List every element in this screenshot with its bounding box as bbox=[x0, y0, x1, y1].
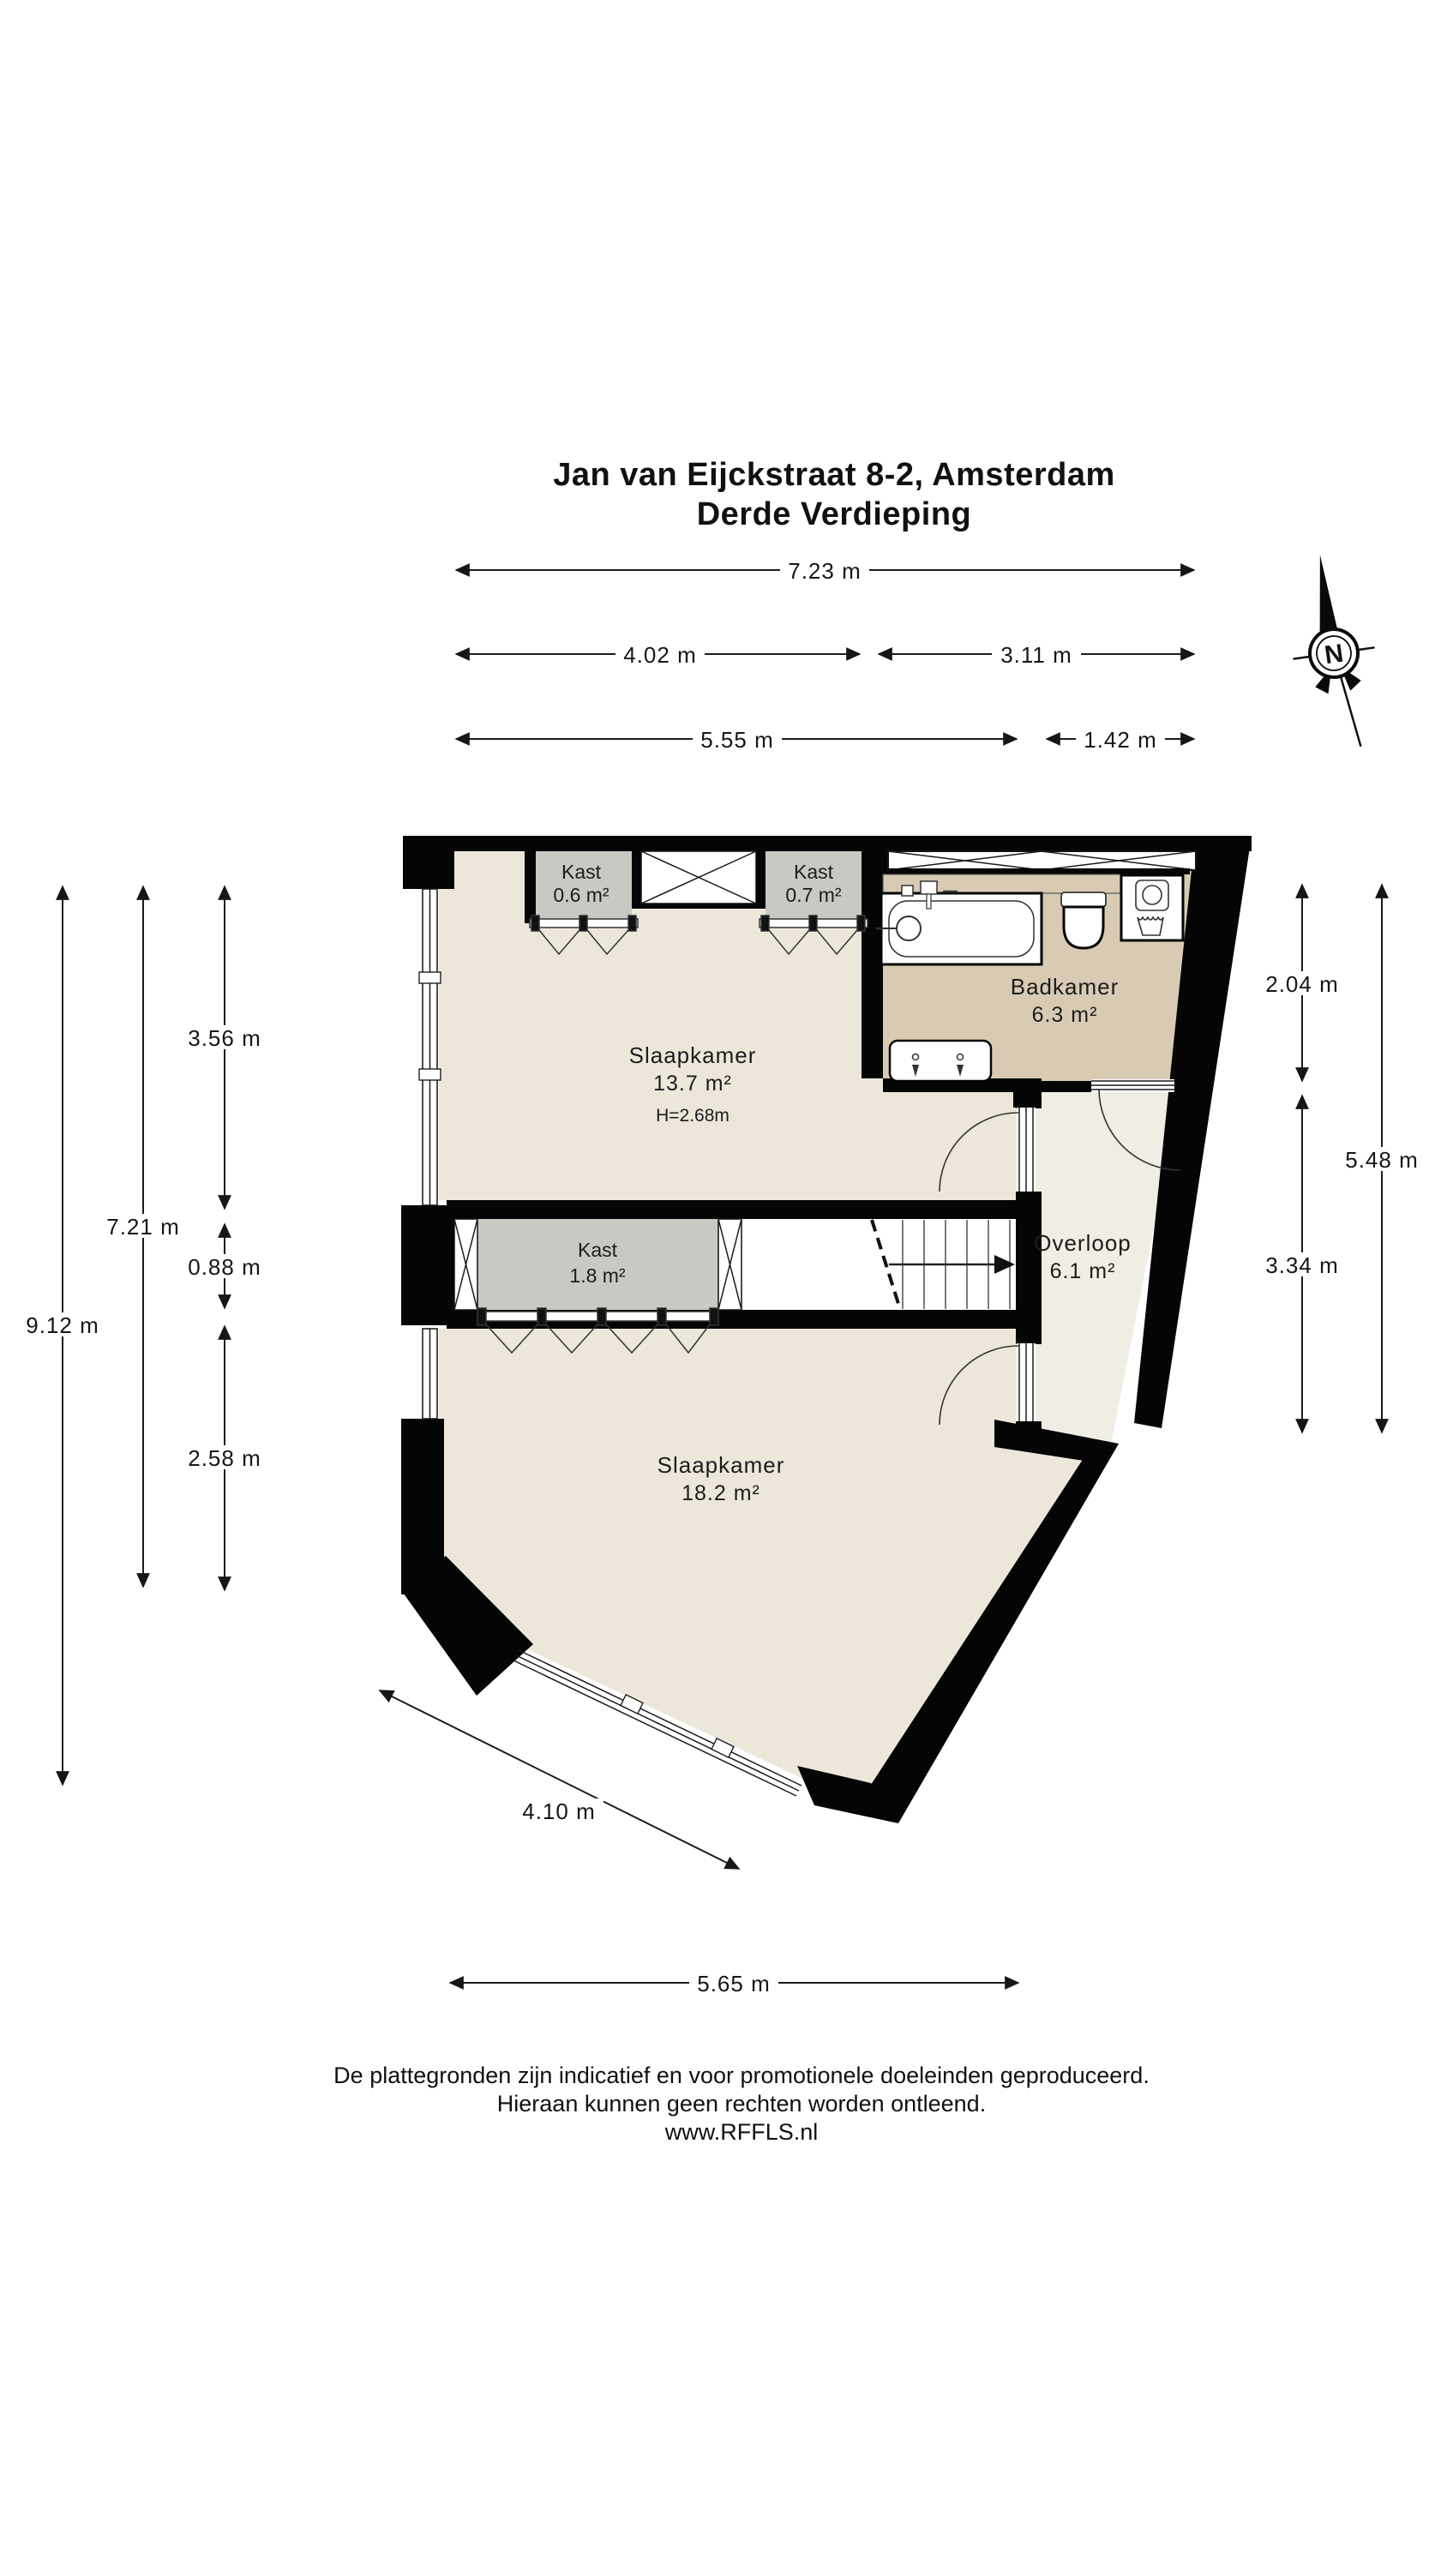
page-titles: Jan van Eijckstraat 8-2, Amsterdam Derde… bbox=[553, 457, 1115, 532]
dim-label-204: 2.04 m bbox=[1265, 971, 1339, 997]
kast3-area: 1.8 m² bbox=[569, 1264, 626, 1287]
kast3-left-post bbox=[454, 1219, 477, 1310]
washing-machine-icon bbox=[1121, 875, 1183, 940]
slaapkamer1-name: Slaapkamer bbox=[629, 1042, 757, 1068]
floorplan-drawing: 7.23 m 4.02 m 3.11 m 5.55 m 1.42 m 9.12 … bbox=[0, 0, 1447, 2572]
kast3-right-post bbox=[718, 1219, 742, 1310]
shaft-x-box bbox=[641, 851, 756, 904]
badkamer-area: 6.3 m² bbox=[1032, 1003, 1098, 1027]
floorplan-page: 7.23 m 4.02 m 3.11 m 5.55 m 1.42 m 9.12 … bbox=[0, 0, 1447, 2572]
window-badkamer-top bbox=[888, 851, 1196, 874]
wall-left-mid-block bbox=[401, 1205, 454, 1325]
footer-line-2: Hieraan kunnen geen rechten worden ontle… bbox=[497, 2091, 986, 2117]
dim-label-410: 4.10 m bbox=[522, 1798, 596, 1824]
wall-badkamer-bottom-mid bbox=[1042, 1081, 1091, 1092]
wall-top bbox=[403, 836, 1252, 851]
wall-top-left-corner bbox=[403, 836, 454, 889]
compass-north-icon: N bbox=[1279, 549, 1388, 754]
compass-north-label: N bbox=[1323, 639, 1345, 670]
dim-label-334: 3.34 m bbox=[1265, 1252, 1339, 1278]
dim-label-548: 5.48 m bbox=[1345, 1147, 1419, 1173]
dim-label-142: 1.42 m bbox=[1084, 727, 1157, 753]
badkamer-name: Badkamer bbox=[1011, 974, 1120, 1000]
kast3-name: Kast bbox=[578, 1239, 618, 1261]
wall-shaft-right bbox=[756, 851, 766, 907]
kast1-area: 0.6 m² bbox=[553, 884, 609, 906]
window-left-lower bbox=[423, 1329, 437, 1419]
kast1-name: Kast bbox=[561, 861, 602, 883]
sink-vanity-icon bbox=[890, 1041, 991, 1081]
badkamer-door-panel bbox=[1091, 1079, 1174, 1092]
wall-shaft-left bbox=[632, 851, 641, 907]
laundry-basin-icon bbox=[1138, 917, 1163, 935]
dim-label-402: 4.02 m bbox=[623, 642, 697, 668]
dim-label-912: 9.12 m bbox=[26, 1312, 99, 1338]
footer-line-1: De plattegronden zijn indicatief en voor… bbox=[333, 2063, 1150, 2088]
slaapkamer2-area: 18.2 m² bbox=[681, 1481, 760, 1505]
dim-label-088: 0.88 m bbox=[188, 1254, 261, 1280]
footer-website: www.RFFLS.nl bbox=[664, 2119, 819, 2145]
slaapkamer2-floor bbox=[439, 1329, 1090, 1790]
wall-overloop-west-a bbox=[1016, 1091, 1042, 1108]
wall-kast1-left bbox=[525, 851, 536, 923]
slaapkamer1-door-frame bbox=[1017, 1108, 1036, 1192]
slaapkamer1-height: H=2.68m bbox=[656, 1106, 730, 1126]
dim-label-311: 3.11 m bbox=[1000, 642, 1072, 668]
overloop-area: 6.1 m² bbox=[1050, 1259, 1116, 1283]
bathtub-icon bbox=[876, 881, 1042, 964]
slaapkamer1-area: 13.7 m² bbox=[653, 1072, 732, 1096]
slaapkamer2-name: Slaapkamer bbox=[657, 1452, 785, 1478]
page-title-address: Jan van Eijckstraat 8-2, Amsterdam bbox=[553, 457, 1115, 493]
window-left-upper bbox=[419, 889, 441, 1205]
dim-label-555: 5.55 m bbox=[700, 727, 774, 753]
slaapkamer2-door-frame bbox=[1017, 1343, 1036, 1421]
counter-shelf bbox=[883, 874, 1120, 893]
dim-label-721: 7.21 m bbox=[106, 1214, 180, 1240]
kast2-area: 0.7 m² bbox=[785, 884, 842, 906]
staircase bbox=[742, 1219, 1016, 1310]
kast2-name: Kast bbox=[794, 861, 834, 883]
toilet-icon bbox=[1061, 892, 1106, 948]
overloop-name: Overloop bbox=[1034, 1230, 1132, 1256]
wall-badkamer-bottom-right bbox=[1174, 1081, 1188, 1092]
dim-label-565: 5.65 m bbox=[697, 1971, 771, 1997]
dim-label-258: 2.58 m bbox=[188, 1445, 261, 1471]
dim-label-723: 7.23 m bbox=[788, 558, 862, 584]
dim-label-356: 3.56 m bbox=[188, 1025, 261, 1051]
page-title-floor: Derde Verdieping bbox=[697, 496, 972, 532]
wall-slaapkamer1-badkamer bbox=[862, 851, 883, 1078]
disclaimer-footer: De plattegronden zijn indicatief en voor… bbox=[333, 2063, 1150, 2145]
wall-kastrow-top bbox=[447, 1200, 1042, 1219]
